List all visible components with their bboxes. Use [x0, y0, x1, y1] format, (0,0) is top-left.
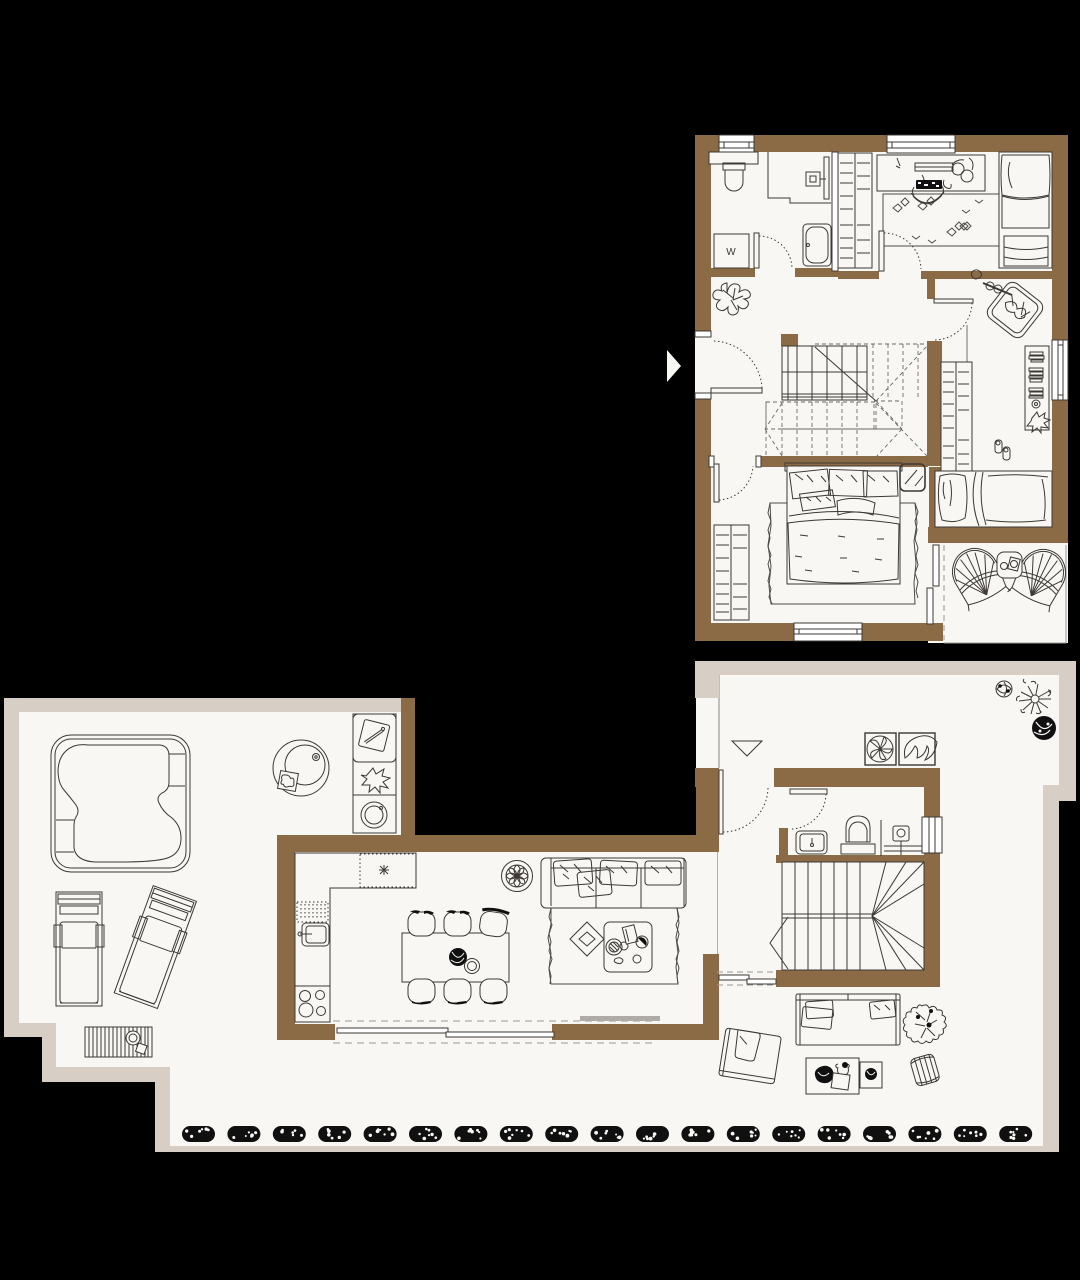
svg-text:W: W	[726, 247, 736, 258]
